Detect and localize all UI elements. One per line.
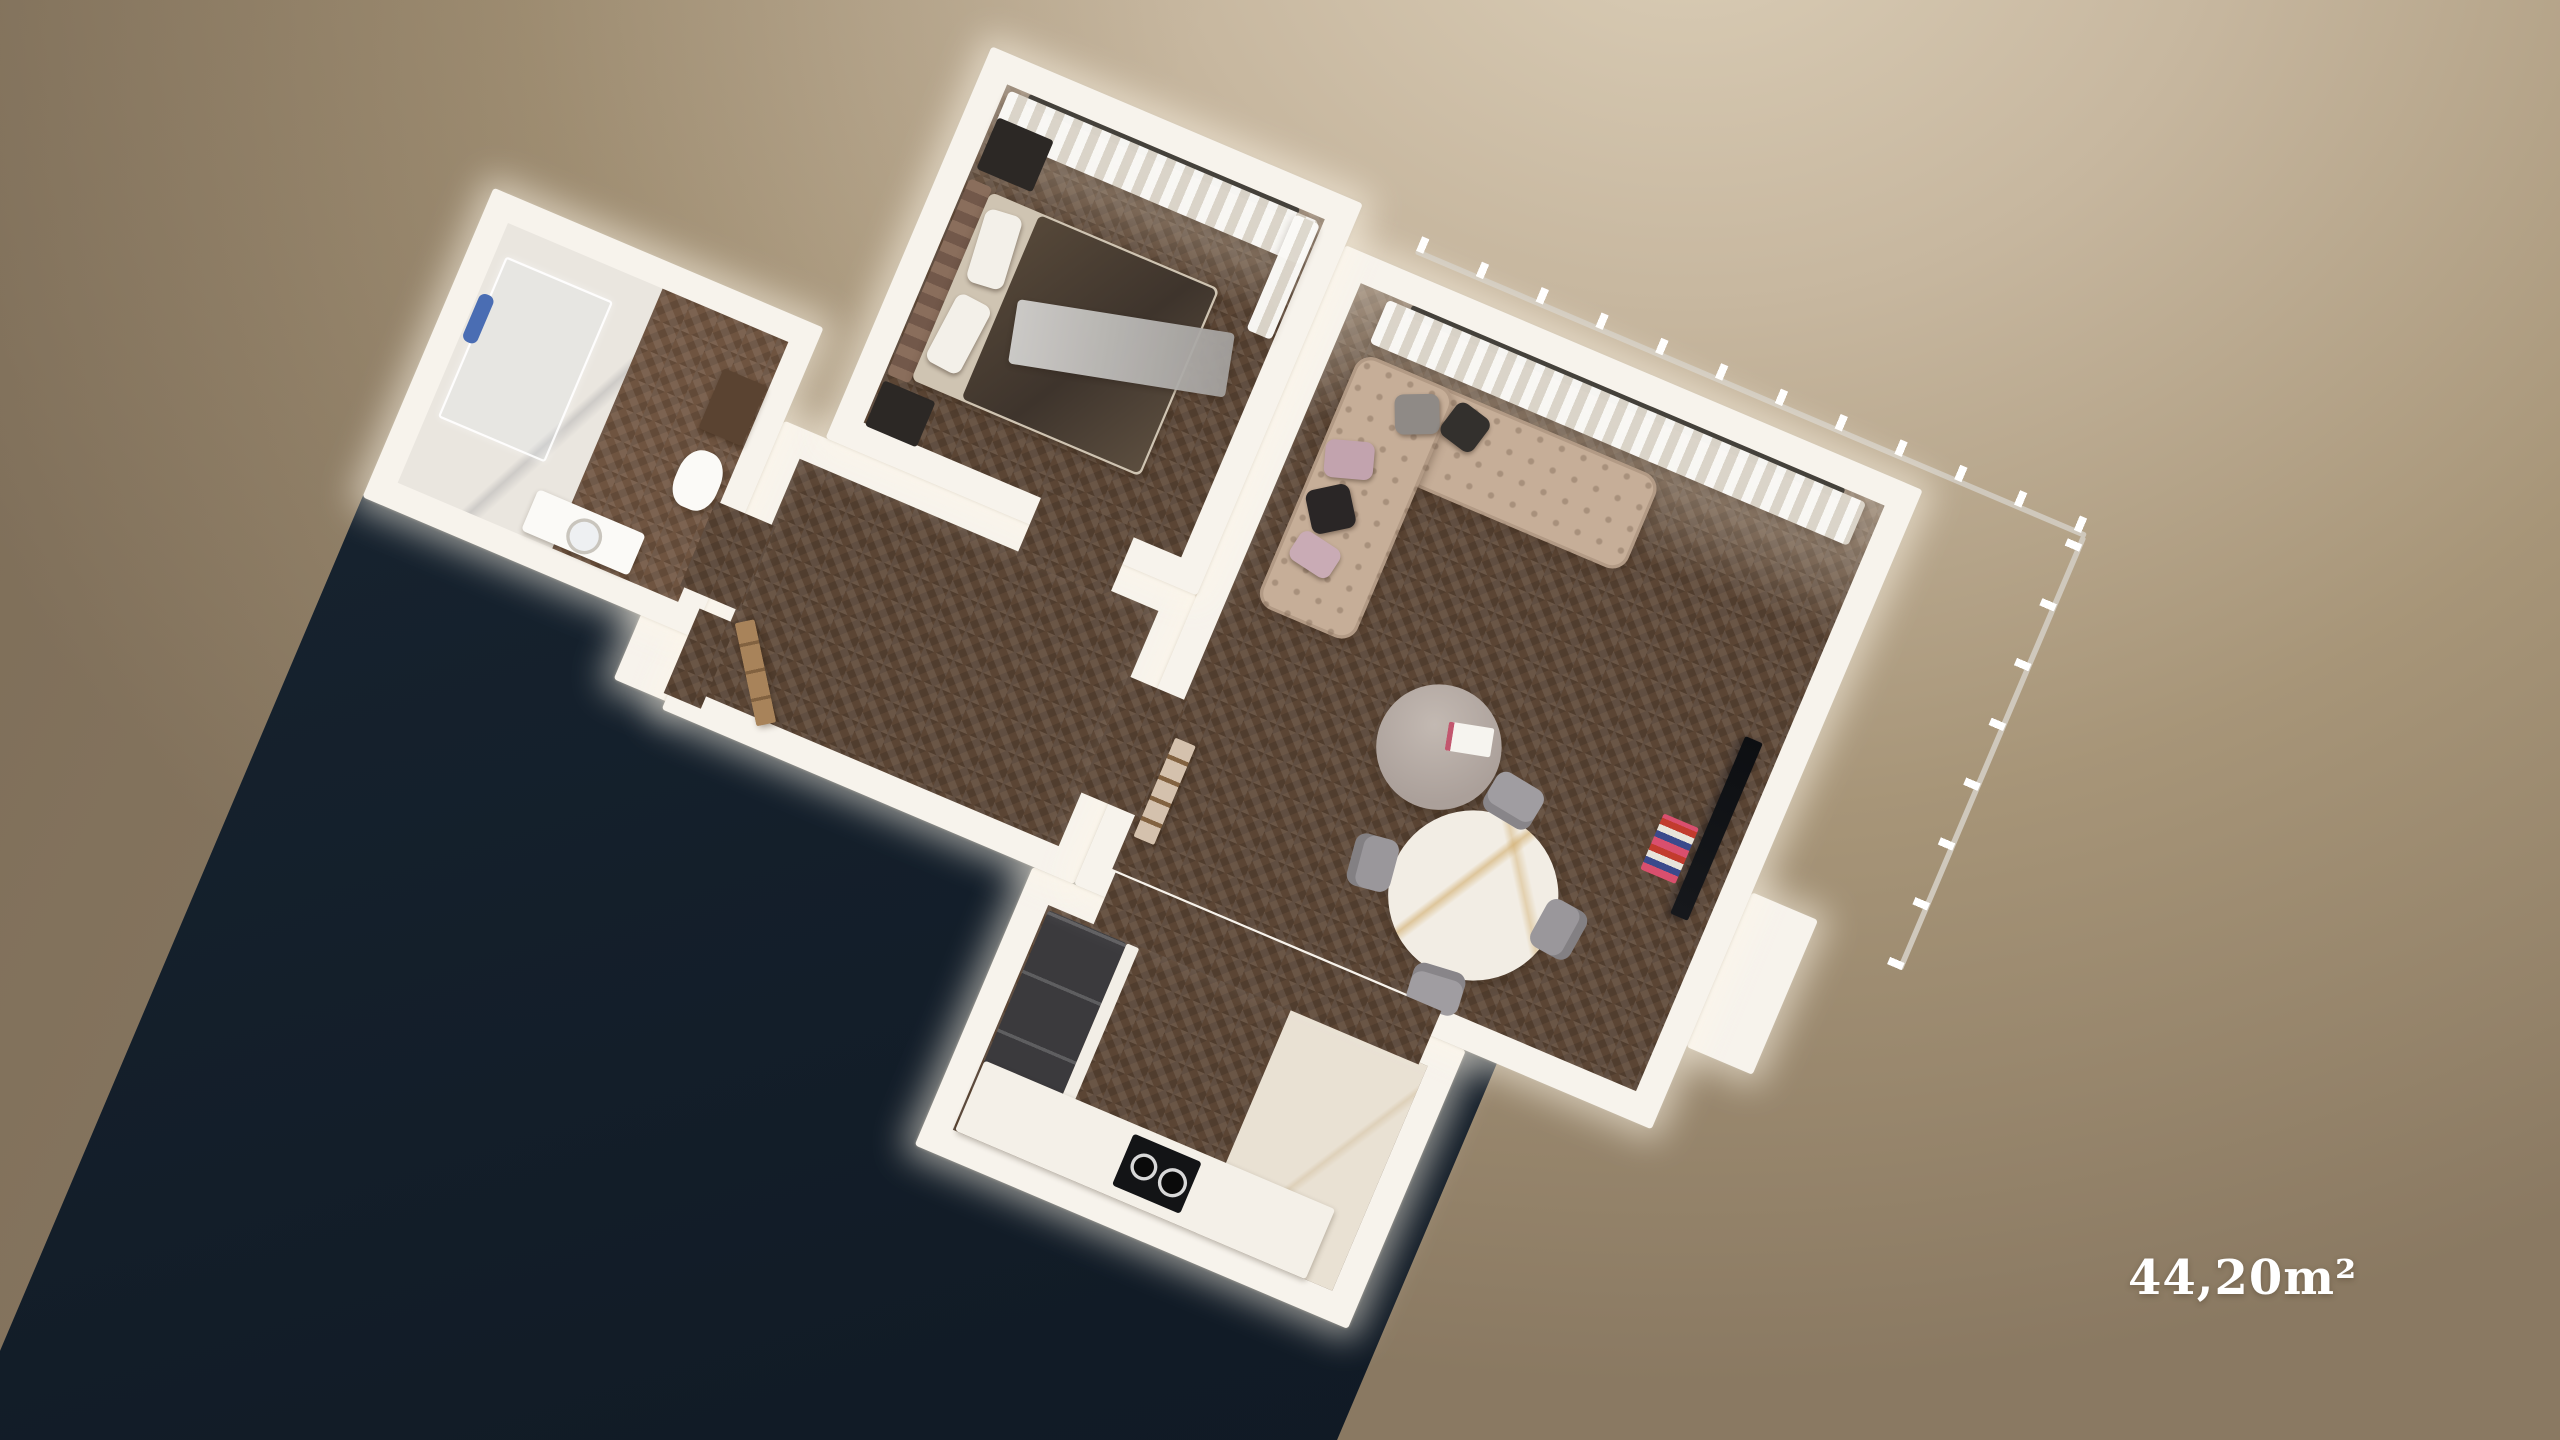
pillow-gray <box>1394 394 1439 435</box>
apartment-scene <box>0 0 2146 1440</box>
render-viewport: 44,20m² <box>0 0 2560 1440</box>
pillow-mauve-1 <box>1323 439 1375 481</box>
shower-glass <box>438 256 613 462</box>
nightstand-bottom <box>865 380 936 447</box>
pillow-black-1 <box>1304 482 1357 535</box>
dining-table <box>1362 784 1585 1007</box>
cooktop-burner-right <box>1153 1164 1191 1202</box>
window-mullion-ticks-right <box>1887 531 2085 970</box>
area-label: 44,20m² <box>2128 1250 2357 1306</box>
cooktop-burner-left <box>1126 1149 1161 1184</box>
coffee-table-book <box>1445 721 1495 757</box>
